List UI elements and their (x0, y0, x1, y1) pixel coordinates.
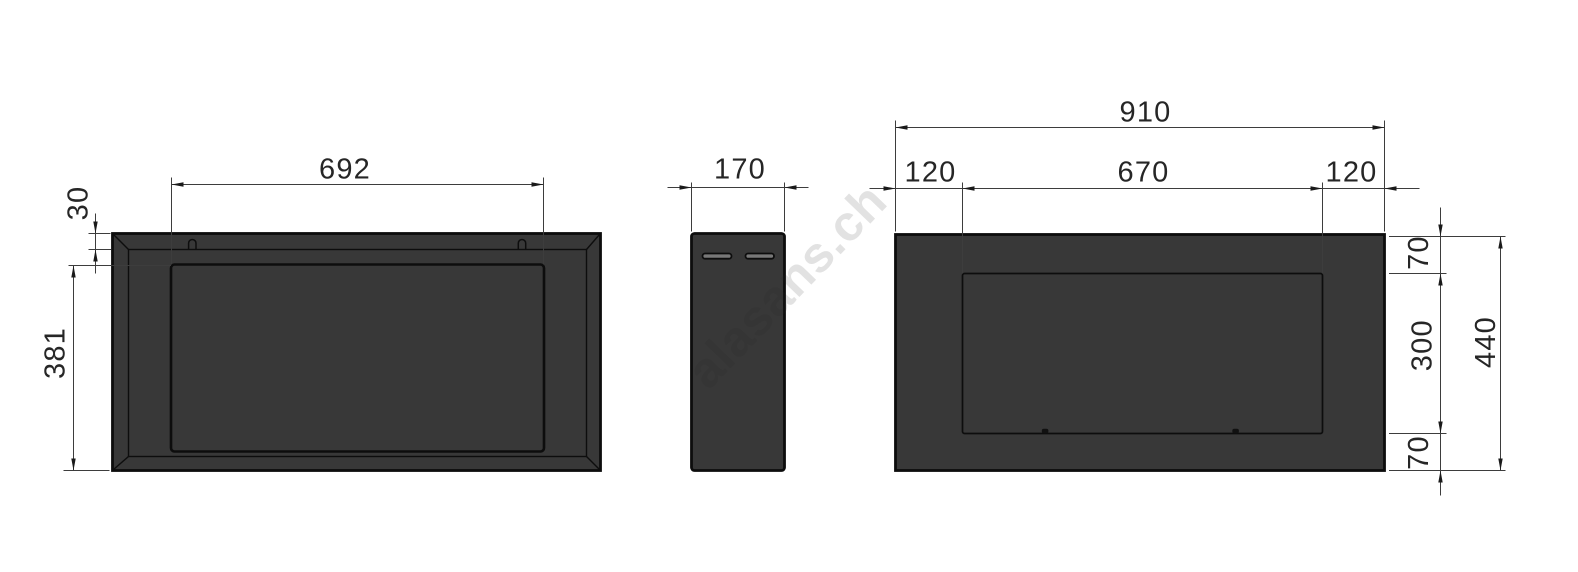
svg-text:670: 670 (1118, 157, 1170, 189)
svg-text:381: 381 (40, 327, 72, 379)
svg-text:910: 910 (1120, 97, 1172, 129)
svg-text:170: 170 (714, 154, 766, 186)
svg-text:30: 30 (63, 186, 95, 221)
svg-text:300: 300 (1407, 319, 1439, 371)
svg-text:70: 70 (1403, 435, 1435, 470)
svg-text:692: 692 (319, 154, 371, 186)
svg-text:120: 120 (1326, 157, 1378, 189)
svg-text:70: 70 (1403, 235, 1435, 270)
svg-text:440: 440 (1470, 316, 1502, 368)
svg-text:120: 120 (905, 157, 957, 189)
